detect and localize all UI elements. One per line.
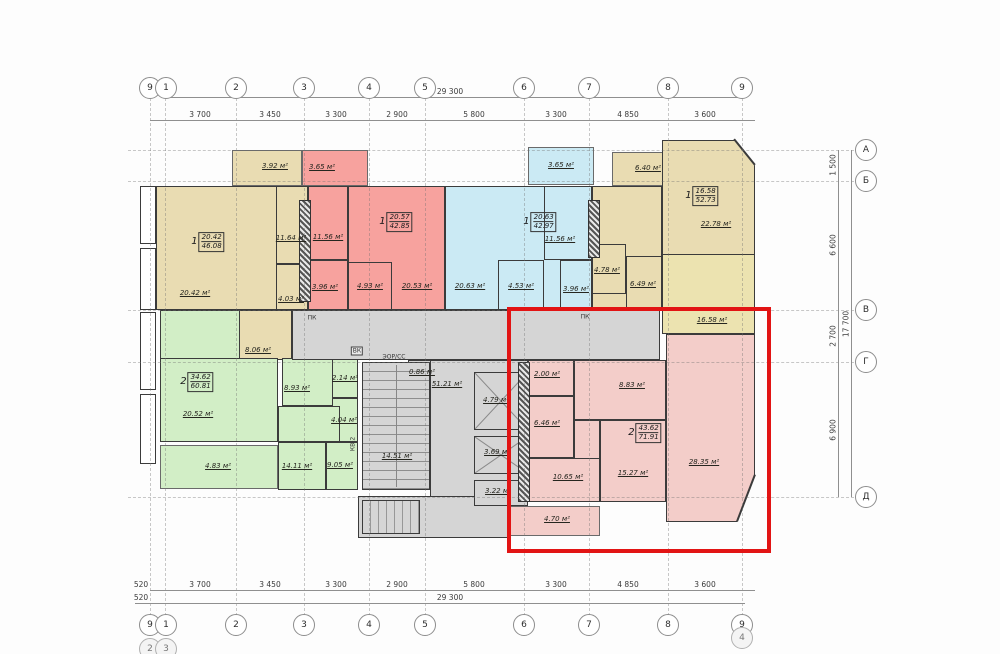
axis-circle-bot-4: 4 [358,614,380,636]
apartment-label-1: 1 20.4246.08 [191,232,224,252]
area-label: 4.78 м² [594,266,620,274]
total-area: 52.73 [696,197,716,205]
dim-segment: 5 800 [463,580,484,589]
area-label: 9.05 м² [327,461,353,469]
dim-overall-top: 29 300 [437,87,463,96]
axis-circle-A: А [855,139,877,161]
dim-segment: 3 300 [325,110,346,119]
dimension-line [838,150,839,497]
dim-segment: 5 800 [463,110,484,119]
area-label: 20.53 м² [402,282,432,290]
total-area: 42.85 [390,223,410,231]
axis-circle-bot-6: 6 [513,614,535,636]
axis-circle-top-4: 4 [358,77,380,99]
axis-circle-top-2: 2 [225,77,247,99]
area-label: 51.21 м² [432,380,462,388]
area-label: 4.83 м² [205,462,231,470]
section-circle-3: 3 [155,638,177,654]
area-label: 20.42 м² [180,289,210,297]
dim-overall-v: 17 700 [842,311,851,337]
dimension-line [150,120,755,121]
axis-line-v [304,98,305,616]
axis-circle-top-1: 1 [155,77,177,99]
room-living [160,358,278,442]
dim-segment: 2 900 [386,580,407,589]
axis-circle-top-6: 6 [513,77,535,99]
axis-circle-top-8: 8 [657,77,679,99]
facade-box [140,394,156,464]
axis-circle-top-5: 5 [414,77,436,99]
area-label: 11.56 м² [545,235,575,243]
dim-520: 520 [134,580,148,589]
axis-circle-bot-3: 3 [293,614,315,636]
living-area: 20.63 [534,213,554,222]
area-label: 6.49 м² [630,280,656,288]
dim-segment-v: 2 700 [829,325,838,346]
area-label: 11.56 м² [313,233,343,241]
apartment-label-3: 1 20.6342.97 [523,212,556,232]
axis-line-v [369,98,370,616]
dim-segment: 4 850 [617,580,638,589]
apartment-label-4: 1 16.5852.73 [685,186,718,206]
area-label: 3.96 м² [563,285,589,293]
axis-line-v [165,98,166,616]
apartment-number: 2 [180,377,186,388]
area-label: 4.03 м² [278,295,304,303]
area-label: 4.04 м² [331,416,357,424]
dim-segment: 3 450 [259,580,280,589]
facade-box [140,248,156,310]
annotation-eor: ЭОР/СС [383,354,406,361]
apartment-number: 1 [523,217,529,228]
area-label: 14.11 м² [282,462,312,470]
room-kitchen [308,186,348,260]
living-area: 34.62 [191,373,211,382]
apartment-number: 1 [379,217,385,228]
apartment-label-2: 1 20.5742.85 [379,212,412,232]
axis-line-h [128,150,854,151]
area-label: 8.93 м² [284,384,310,392]
dim-segment: 3 300 [545,110,566,119]
entrance-steps [362,500,420,534]
area-label: 4.79 м² [483,396,509,404]
area-label: 3.92 м² [262,162,288,170]
living-area: 16.58 [696,187,716,196]
axis-line-h [128,181,854,182]
area-label: 8.06 м² [245,346,271,354]
annotation-pk: ПК [308,315,317,322]
total-area: 42.97 [534,223,554,231]
area-label: 20.52 м² [183,410,213,418]
area-label: 2.14 м² [332,374,358,382]
floor-plan: 29 300 3 700 3 450 3 300 2 900 5 800 3 3… [0,0,1000,654]
living-area: 20.42 [202,233,222,242]
dim-segment-v: 6 900 [829,419,838,440]
area-label: 6.40 м² [635,164,661,172]
dim-segment: 3 700 [189,580,210,589]
dim-segment: 3 300 [325,580,346,589]
axis-circle-G: Г [855,351,877,373]
axis-circle-bot-8: 8 [657,614,679,636]
area-label: 3.65 м² [548,161,574,169]
area-label: 0.86 м² [409,368,435,376]
facade-box [140,186,156,244]
axis-circle-V: В [855,299,877,321]
axis-line-v [236,98,237,616]
dimension-line [150,590,755,591]
total-area: 46.08 [202,243,222,251]
room-staircase [362,362,430,490]
axis-line-v [150,98,151,616]
living-area: 20.57 [390,213,410,222]
dimension-line [165,97,742,98]
axis-circle-bot-5: 5 [414,614,436,636]
axis-circle-bot-2: 2 [225,614,247,636]
axis-circle-top-9: 9 [731,77,753,99]
area-label: 20.63 м² [455,282,485,290]
axis-line-v [425,98,426,616]
area-label: 3.65 м² [309,163,335,171]
axis-circle-bot-7: 7 [578,614,600,636]
room-corridor [278,406,340,442]
dimension-line [135,603,745,604]
section-circle-4: 4 [731,627,753,649]
dim-segment: 3 600 [694,580,715,589]
area-label: 4.53 м² [508,282,534,290]
total-area: 60.81 [191,383,211,391]
annotation-vk: ВК [351,347,363,356]
dim-segment: 2 900 [386,110,407,119]
dim-segment-v: 1 500 [829,154,838,175]
axis-circle-B: Б [855,170,877,192]
area-label: 4.93 м² [357,282,383,290]
dimension-line [851,150,852,497]
dim-segment: 3 300 [545,580,566,589]
axis-circle-top-7: 7 [578,77,600,99]
annotation-kv2: КВ-2 [350,437,357,451]
dim-segment: 3 450 [259,110,280,119]
apartment-number: 1 [685,191,691,202]
axis-circle-D: Д [855,486,877,508]
area-label: 11.64 м² [276,234,306,242]
room-living-top [160,310,240,360]
axis-circle-top-3: 3 [293,77,315,99]
vent-shaft [299,200,311,302]
dim-520: 520 [134,593,148,602]
highlight-rectangle [507,307,771,553]
dim-segment-v: 6 600 [829,234,838,255]
area-label: 14.51 м² [382,452,412,460]
dim-segment: 3 600 [694,110,715,119]
area-label: 3.96 м² [312,283,338,291]
dim-overall-bottom: 29 300 [437,593,463,602]
dim-segment: 4 850 [617,110,638,119]
apartment-label-5: 2 34.6260.81 [180,372,213,392]
axis-circle-bot-1: 1 [155,614,177,636]
dim-segment: 3 700 [189,110,210,119]
facade-box [140,312,156,390]
area-label: 22.78 м² [701,220,731,228]
apartment-number: 1 [191,237,197,248]
